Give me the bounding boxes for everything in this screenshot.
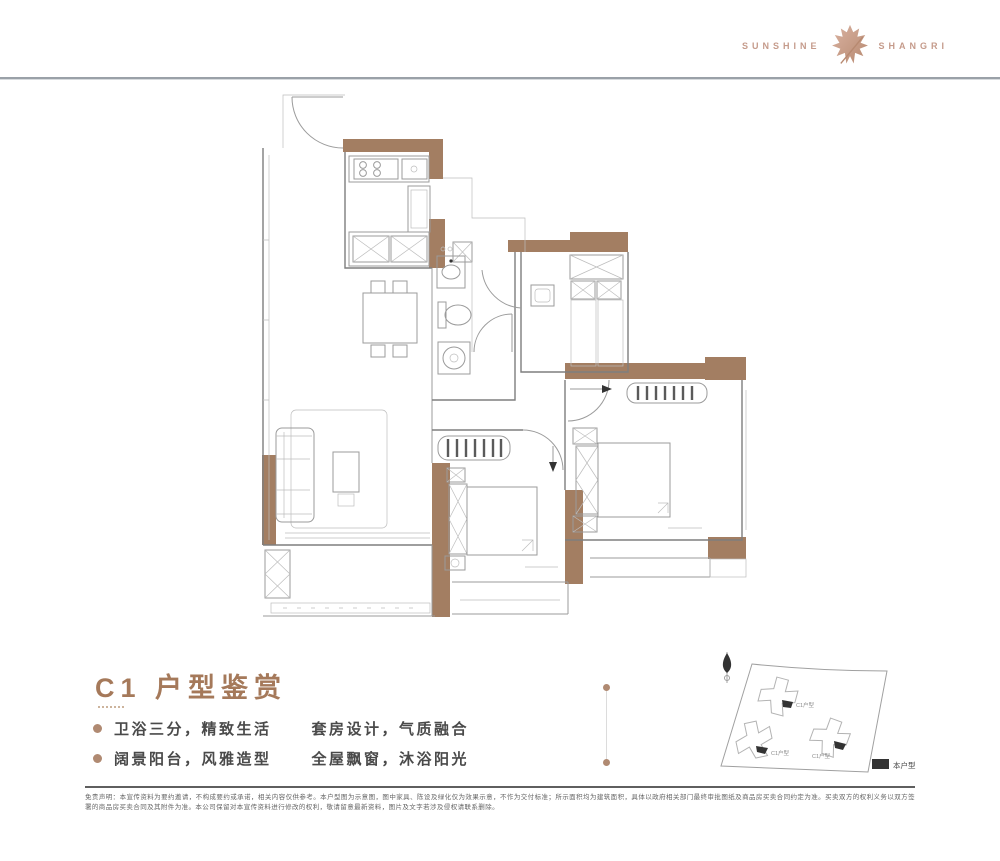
kitchen-sink <box>402 159 427 179</box>
building-outline <box>756 674 800 718</box>
header-rule <box>0 77 1000 80</box>
building-label: C1户型 <box>771 749 790 757</box>
page-title: C1 户型鉴赏 <box>95 666 287 705</box>
coffee-table <box>333 452 359 492</box>
chair <box>371 281 385 293</box>
site-boundary <box>721 664 887 772</box>
north-arrow-icon <box>723 652 731 683</box>
dining-table <box>363 293 417 343</box>
bedroom-middle <box>438 430 568 614</box>
clothes-rack <box>627 383 707 403</box>
maple-leaf-icon <box>827 22 873 70</box>
railing <box>271 603 430 613</box>
title-underline <box>98 706 124 708</box>
unit-marker <box>834 741 846 750</box>
living-room <box>276 410 430 538</box>
building-outline <box>733 719 776 762</box>
sofa <box>276 428 314 522</box>
bullet-text: 全屋飘窗，沐浴阳光 <box>312 748 470 769</box>
column <box>265 550 290 598</box>
bullet-text: 卫浴三分，精致生活 <box>114 718 272 739</box>
bullet-text: 套房设计，气质融合 <box>312 718 470 739</box>
feature-bullet: 卫浴三分，精致生活 套房设计，气质融合 <box>93 718 469 739</box>
disclaimer-text: 免责声明：本宣传资料为要约邀请，不构成要约或承诺，相关内容仅供参考。本户型图为示… <box>85 786 915 813</box>
site-map: C1户型 C1户型 C1户型 本户型 <box>698 642 952 794</box>
legend-label: 本户型 <box>893 760 916 770</box>
toilet <box>438 302 471 328</box>
brand-logo: SUNSHINE SHANGRI <box>700 20 990 72</box>
entry-door <box>283 95 345 148</box>
logo-word-left: SUNSHINE <box>742 41 821 51</box>
balcony <box>263 545 435 616</box>
bathroom <box>437 242 512 374</box>
bullet-text: 阔景阳台，风雅造型 <box>114 748 272 769</box>
floor-plan <box>250 88 750 633</box>
dining-area <box>363 281 417 357</box>
walls <box>263 148 750 545</box>
bullet-dot-icon <box>93 754 102 763</box>
balcony-slider <box>285 533 430 538</box>
kitchen <box>349 156 430 266</box>
feature-bullet: 阔景阳台，风雅造型 全屋飘窗，沐浴阳光 <box>93 748 469 769</box>
bedroom-door <box>523 430 563 470</box>
door-arrow-icon <box>549 462 557 472</box>
map-legend: 本户型 <box>872 759 916 770</box>
logo-word-right: SHANGRI <box>879 41 949 51</box>
washing-machine <box>438 342 470 374</box>
bullet-dot-icon <box>93 724 102 733</box>
study-room <box>482 255 623 366</box>
chair <box>371 345 385 357</box>
clothes-rack <box>438 436 510 460</box>
brochure-page: SUNSHINE SHANGRI <box>0 0 1000 861</box>
bay-window <box>452 582 568 614</box>
vertical-divider <box>606 690 607 760</box>
bed <box>467 487 537 555</box>
building-label: C1户型 <box>812 752 831 760</box>
bed <box>598 443 670 517</box>
chair <box>393 345 407 357</box>
legend-swatch <box>872 759 889 769</box>
unit-marker <box>782 700 793 708</box>
bay-window <box>590 558 710 577</box>
chair <box>393 281 407 293</box>
building-label: C1户型 <box>796 701 815 709</box>
side-table <box>531 285 554 306</box>
bathroom-door <box>474 314 512 352</box>
